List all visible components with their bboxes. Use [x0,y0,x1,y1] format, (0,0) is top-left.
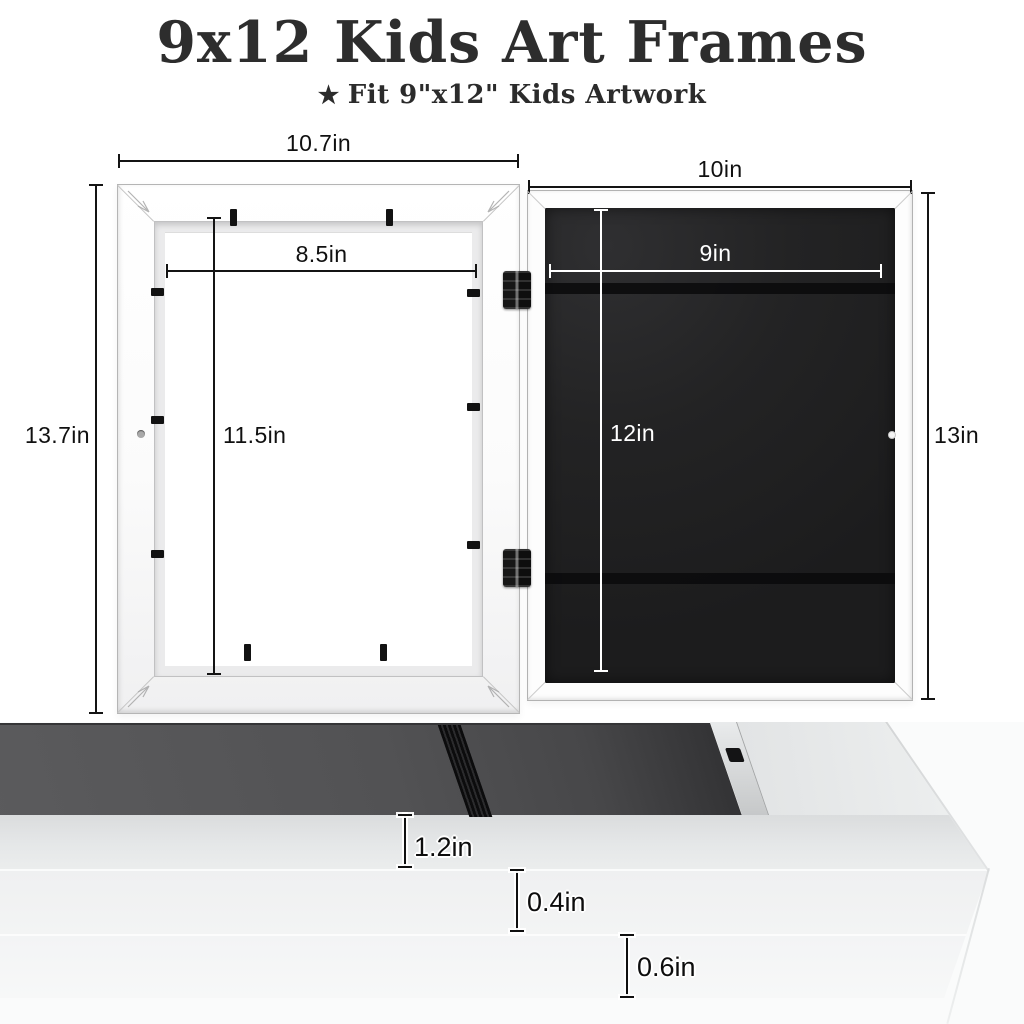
miter-joint-line [894,191,912,209]
elastic-strap [438,725,493,817]
miter-joint-line [527,682,545,700]
dimension-label-back-outer-width: 10in [528,157,912,182]
backing-board [545,208,895,683]
dimension-line-front-outer-width [118,160,519,162]
frame-middle-step [0,869,1024,934]
retainer-clip [467,403,480,411]
retainer-clip [244,644,251,661]
elastic-strap-line [545,283,895,294]
miter-joint-line [894,682,912,700]
dimension-label-back-outer-height: 13in [934,423,979,448]
dimension-line-back-outer-height [927,192,929,700]
dimension-line-middle-step [516,869,518,932]
dimension-label-front-outer-width: 10.7in [118,131,519,156]
corner-scratch-mark [483,681,513,711]
dimension-label-opening-height: 11.5in [223,423,286,448]
dimension-line-board-width [549,270,882,272]
retainer-clip [725,748,745,762]
product-subtitle: ★Fit 9"x12" Kids Artwork [0,80,1024,110]
product-subtitle-text: Fit 9"x12" Kids Artwork [348,80,706,110]
dimension-line-front-outer-height [95,184,97,714]
dimension-label-middle-step: 0.4in [527,887,586,918]
header: 9x12 Kids Art Frames ★Fit 9"x12" Kids Ar… [0,0,1024,110]
corner-scratch-mark [124,681,154,711]
product-dimension-image: 9x12 Kids Art Frames ★Fit 9"x12" Kids Ar… [0,0,1024,1024]
dimension-label-front-height: 1.2in [414,832,473,863]
dimension-line-back-outer-width [528,186,912,188]
retainer-clip [230,209,237,226]
frame-bottom-step [0,998,1024,1024]
dimension-label-board-width: 9in [549,241,882,266]
hinge [503,271,531,309]
miter-joint-line [527,191,545,209]
retainer-clip [467,541,480,549]
corner-scratch-mark [124,187,154,217]
corner-scratch-mark [483,187,513,217]
screw-hole [137,430,145,438]
retainer-clip [467,289,480,297]
frame-inner-lip [154,221,483,677]
dimension-line-front-height [404,814,406,868]
dimension-label-front-outer-height: 13.7in [16,423,90,448]
dimension-line-opening-height [213,217,215,675]
product-title: 9x12 Kids Art Frames [0,10,1024,76]
frame-opening [165,232,472,666]
retainer-clip [386,209,393,226]
retainer-clip [151,416,164,424]
star-icon: ★ [318,80,340,109]
frame-profile-photo: 1.2in 0.4in 0.6in [0,722,1024,1024]
retainer-clip [380,644,387,661]
back-frame-molding [527,190,913,701]
frame-front-face [0,814,1024,869]
retainer-clip [151,550,164,558]
dimension-label-board-height: 12in [610,421,655,446]
dimension-line-board-height [600,209,602,672]
hinge [503,549,531,587]
screw-hole [888,431,896,439]
dimension-label-back-step: 0.6in [637,952,696,983]
dimension-line-back-step [626,934,628,998]
elastic-strap-line [545,573,895,584]
frame-back-step [0,934,1024,998]
retainer-clip [151,288,164,296]
backing-panel [0,723,742,815]
